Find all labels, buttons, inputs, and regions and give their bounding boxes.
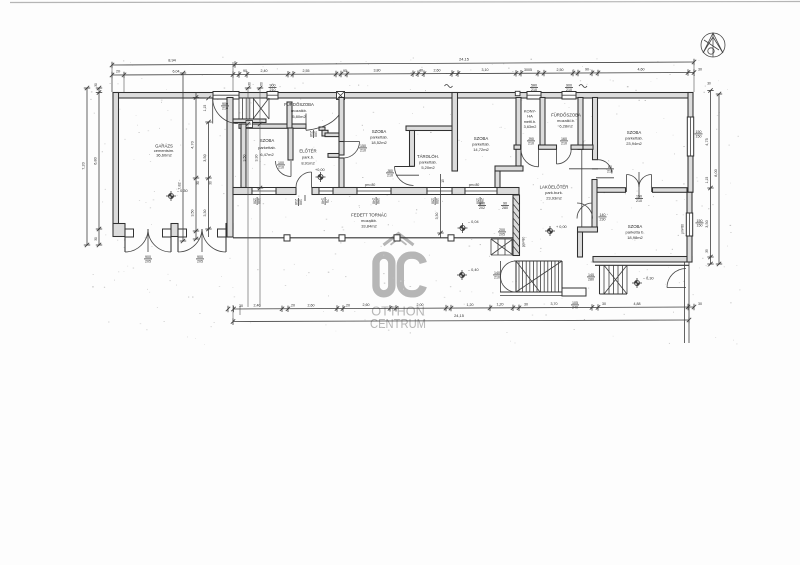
svg-text:200: 200: [499, 228, 505, 232]
svg-text:210: 210: [309, 131, 313, 137]
svg-text:3,80: 3,80: [374, 69, 381, 73]
svg-text:210: 210: [270, 88, 276, 92]
svg-text:ELŐTÉR: ELŐTÉR: [299, 149, 316, 154]
svg-text:2,40: 2,40: [261, 69, 268, 73]
svg-text:190: 190: [376, 198, 380, 204]
svg-text:30: 30: [524, 303, 528, 307]
svg-text:150: 150: [696, 134, 702, 138]
svg-text:3,30: 3,30: [255, 155, 259, 162]
svg-text:FÜRDŐSZOBA: FÜRDŐSZOBA: [284, 102, 314, 107]
svg-text:mettl.b.: mettl.b.: [524, 120, 536, 124]
svg-text:J90: J90: [528, 137, 534, 141]
svg-text:205: 205: [145, 259, 151, 263]
svg-text:4,75: 4,75: [705, 138, 709, 145]
svg-text:pm=80: pm=80: [365, 183, 376, 187]
svg-text:150: 150: [696, 130, 702, 134]
svg-text:30: 30: [196, 181, 200, 185]
svg-text:1,15: 1,15: [203, 105, 207, 112]
svg-text:50: 50: [260, 82, 264, 86]
svg-text:6,80: 6,80: [94, 157, 98, 164]
svg-text:3,50: 3,50: [191, 210, 195, 217]
svg-text:240: 240: [372, 198, 376, 204]
svg-text:SZOBA: SZOBA: [627, 130, 642, 135]
svg-text:2,60: 2,60: [308, 303, 315, 307]
svg-text:8,00: 8,00: [714, 169, 718, 176]
svg-text:TÁROLÓH.: TÁROLÓH.: [417, 154, 439, 159]
svg-text:SZOBA: SZOBA: [628, 224, 643, 229]
svg-text:mozaikb.: mozaikb.: [361, 218, 377, 223]
svg-text:900: 900: [197, 255, 203, 259]
svg-text:3,70: 3,70: [551, 302, 558, 306]
svg-text:80: 80: [608, 165, 612, 169]
svg-text:280: 280: [502, 206, 508, 210]
svg-text:park.burk.: park.burk.: [545, 190, 563, 195]
svg-text:FEDETT TORNÁC: FEDETT TORNÁC: [351, 213, 387, 218]
svg-text:parkettab.: parkettab.: [370, 135, 388, 140]
svg-text:– 0,30: – 0,30: [643, 277, 654, 281]
svg-text:210: 210: [360, 148, 366, 152]
svg-text:35: 35: [705, 249, 709, 253]
svg-text:30: 30: [94, 83, 98, 87]
svg-text:4,70: 4,70: [191, 141, 195, 148]
svg-text:30: 30: [698, 67, 702, 71]
svg-text:100: 100: [314, 131, 318, 137]
svg-text:33,84m2: 33,84m2: [361, 224, 377, 229]
svg-text:23,93m2: 23,93m2: [546, 196, 562, 201]
svg-text:30: 30: [239, 304, 243, 308]
svg-text:150: 150: [697, 219, 703, 223]
svg-text:mozaikb.: mozaikb.: [291, 108, 307, 113]
svg-text:+0,00: +0,00: [315, 168, 325, 172]
svg-text:210: 210: [294, 199, 298, 205]
svg-text:36,60m2: 36,60m2: [156, 153, 172, 158]
svg-text:SZOBA: SZOBA: [372, 129, 387, 134]
svg-text:160: 160: [561, 137, 567, 141]
svg-text:100: 100: [278, 161, 284, 165]
svg-text:900: 900: [145, 255, 151, 259]
svg-text:14,72m2: 14,72m2: [473, 147, 489, 152]
svg-text:parkettab.: parkettab.: [419, 160, 437, 165]
svg-text:park.b.: park.b.: [302, 155, 314, 160]
svg-text:95: 95: [343, 69, 347, 73]
svg-text:30: 30: [94, 237, 98, 241]
svg-text:pm=80: pm=80: [681, 224, 685, 234]
svg-text:900: 900: [566, 84, 572, 88]
svg-text:7,20: 7,20: [82, 162, 86, 169]
svg-text:2,55: 2,55: [303, 69, 310, 73]
svg-text:parketta b.: parketta b.: [626, 230, 645, 235]
svg-text:3,30: 3,30: [203, 210, 207, 217]
svg-text:– 0,40: – 0,40: [468, 268, 479, 272]
svg-text:150: 150: [253, 198, 257, 204]
svg-text:SZOBA: SZOBA: [474, 136, 489, 141]
svg-text:210: 210: [494, 275, 500, 279]
svg-text:40: 40: [419, 69, 423, 73]
svg-text:3005: 3005: [524, 68, 532, 72]
svg-text:pm=80: pm=80: [522, 237, 526, 248]
svg-text:24,15: 24,15: [459, 57, 469, 62]
svg-text:210: 210: [531, 88, 537, 92]
svg-text:15: 15: [441, 179, 445, 183]
svg-text:150: 150: [360, 144, 366, 148]
svg-text:90: 90: [503, 202, 507, 206]
svg-text:210: 210: [387, 173, 393, 177]
svg-text:202: 202: [479, 206, 485, 210]
svg-text:2,60: 2,60: [363, 303, 370, 307]
svg-text:parkettab.: parkettab.: [625, 136, 643, 141]
svg-text:150: 150: [431, 198, 435, 204]
svg-text:1,20: 1,20: [467, 303, 474, 307]
svg-text:20: 20: [116, 70, 120, 74]
svg-text:2,50: 2,50: [557, 68, 564, 72]
svg-text:J80: J80: [387, 169, 393, 173]
svg-text:600: 600: [479, 202, 485, 206]
svg-text:3,30: 3,30: [435, 213, 439, 220]
svg-text:210: 210: [561, 141, 567, 145]
svg-text:280: 280: [588, 277, 594, 281]
svg-text:parkettab.: parkettab.: [472, 142, 490, 147]
svg-text:30: 30: [707, 82, 711, 86]
svg-text:900: 900: [222, 102, 228, 106]
svg-text:7,82: 7,82: [178, 182, 182, 189]
svg-text:SZOBA: SZOBA: [260, 138, 275, 143]
svg-text:90: 90: [585, 68, 589, 72]
svg-text:3,10: 3,10: [482, 68, 489, 72]
svg-text:18,98m2: 18,98m2: [627, 235, 643, 240]
svg-text:140: 140: [600, 213, 606, 217]
svg-text:FÜRDŐSZOBA: FÜRDŐSZOBA: [551, 113, 581, 118]
svg-text:8,94: 8,94: [168, 58, 176, 63]
svg-text:105: 105: [572, 301, 578, 305]
svg-text:LAKÓELŐTÉR: LAKÓELŐTÉR: [540, 185, 569, 190]
svg-text:2,40: 2,40: [254, 304, 261, 308]
svg-text:mozaikl.b.: mozaikl.b.: [557, 118, 575, 123]
svg-text:210: 210: [566, 88, 572, 92]
svg-text:140: 140: [588, 273, 594, 277]
svg-text:30: 30: [209, 181, 213, 185]
svg-text:5,80m2: 5,80m2: [292, 114, 306, 119]
svg-text:20: 20: [346, 303, 350, 307]
svg-text:2,00: 2,00: [417, 303, 424, 307]
svg-text:150: 150: [257, 198, 261, 204]
svg-text:210: 210: [278, 165, 284, 169]
svg-text:210: 210: [222, 106, 228, 110]
svg-text:8,91m2: 8,91m2: [301, 161, 315, 166]
svg-text:150: 150: [697, 223, 703, 227]
svg-text:6,28m2: 6,28m2: [559, 124, 573, 129]
svg-text:6,47m2: 6,47m2: [260, 152, 274, 157]
svg-text:3,50: 3,50: [243, 155, 247, 162]
svg-text:– 0,04: – 0,04: [468, 220, 479, 224]
svg-text:+ 0,00: + 0,00: [556, 225, 567, 229]
svg-text:6,04: 6,04: [173, 69, 180, 73]
svg-text:18,52m2: 18,52m2: [371, 140, 387, 145]
svg-text:3,50: 3,50: [705, 220, 709, 227]
svg-text:75: 75: [325, 199, 329, 203]
svg-text:30: 30: [602, 302, 606, 306]
svg-text:HA: HA: [527, 114, 533, 119]
svg-text:parkettab.: parkettab.: [258, 145, 276, 150]
svg-text:230: 230: [600, 217, 606, 221]
svg-text:205: 205: [197, 259, 203, 263]
svg-text:24,15: 24,15: [454, 313, 464, 318]
svg-text:140: 140: [494, 271, 500, 275]
svg-text:140: 140: [321, 198, 325, 204]
svg-text:5,20m2: 5,20m2: [421, 165, 435, 170]
svg-text:150: 150: [636, 195, 642, 199]
svg-text:1,15: 1,15: [705, 177, 709, 184]
svg-text:100: 100: [299, 199, 303, 205]
svg-text:150: 150: [435, 198, 439, 204]
svg-text:210: 210: [528, 141, 534, 145]
svg-text:pm=80: pm=80: [469, 183, 480, 187]
svg-text:500: 500: [531, 84, 537, 88]
svg-text:90: 90: [243, 69, 247, 73]
svg-text:2,60: 2,60: [434, 68, 441, 72]
svg-text:23,94m2: 23,94m2: [626, 141, 642, 146]
svg-text:210: 210: [636, 199, 642, 203]
svg-text:30: 30: [698, 302, 702, 306]
svg-text:20: 20: [291, 304, 295, 308]
svg-text:CENTRUM: CENTRUM: [370, 316, 426, 331]
svg-text:1,20: 1,20: [497, 303, 504, 307]
svg-text:900: 900: [270, 84, 276, 88]
svg-text:4,88: 4,88: [634, 302, 641, 306]
svg-text:3,63m2: 3,63m2: [524, 125, 537, 129]
svg-text:205: 205: [499, 232, 505, 236]
svg-text:30: 30: [248, 82, 252, 86]
svg-text:210: 210: [607, 169, 613, 173]
svg-text:4,60: 4,60: [638, 67, 645, 71]
svg-text:3,50: 3,50: [203, 154, 207, 161]
